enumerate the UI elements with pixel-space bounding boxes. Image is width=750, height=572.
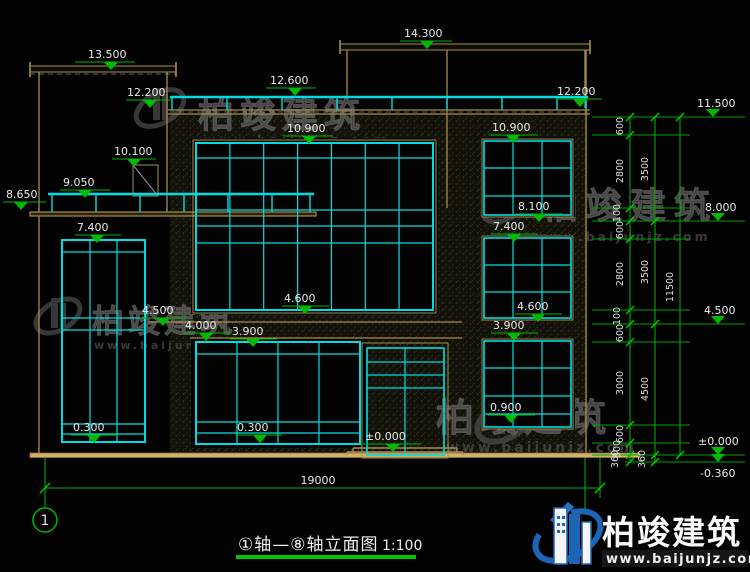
elevation-value: 4.600 — [284, 292, 316, 305]
dim-label: 3500 — [640, 157, 651, 181]
dim-label: 2800 — [615, 262, 626, 286]
elevation-value: 11.500 — [697, 97, 736, 110]
elevation-value: 10.900 — [492, 121, 531, 134]
logo-tower-3 — [582, 522, 591, 564]
elevation-value: 3.900 — [232, 325, 264, 338]
marker-12600: 12.600 — [266, 74, 316, 96]
elevation-value: 4.500 — [704, 304, 736, 317]
dim-label: 600 — [615, 221, 626, 239]
ground-line — [30, 453, 640, 458]
elevation-value: 8.100 — [518, 200, 550, 213]
elevation-value: 8.000 — [705, 201, 737, 214]
dim-label: 600 — [615, 324, 626, 342]
elevation-value: ±0.000 — [365, 430, 406, 443]
elevation-value: 10.900 — [287, 122, 326, 135]
chain-labels-col3: 11500 — [665, 272, 676, 302]
dimension-chains: 600 2800 100 600 2800 100 600 3000 600 3… — [592, 113, 745, 468]
dim-label: 3500 — [640, 260, 651, 284]
elevation-value: 12.200 — [557, 85, 596, 98]
brand-url: www.baijunjz.com — [606, 552, 750, 567]
marker-11500: 11.500 — [697, 97, 736, 117]
dim-label: 11500 — [665, 272, 676, 302]
marker-0000-right: ±0.000 — [698, 435, 739, 455]
dim-label: 100 — [612, 204, 623, 222]
elevation-value: 7.400 — [77, 221, 109, 234]
dim-label: 2800 — [615, 159, 626, 183]
elevation-value: 0.900 — [490, 401, 522, 414]
axis-number: 1 — [41, 513, 50, 529]
title-underline — [236, 555, 416, 559]
elevation-value: -0.360 — [700, 467, 735, 480]
brand-logo-icon — [527, 501, 609, 571]
marker-4500-right: 4.500 — [704, 304, 736, 324]
overall-dimension: 19000 1 — [33, 458, 605, 532]
chain-labels-col1: 600 2800 100 600 2800 100 600 3000 600 3… — [610, 117, 626, 468]
elevation-drawing: 柏竣建筑 www.baijunjz.com 柏竣建筑 www.baijunjz.… — [0, 0, 750, 572]
elevation-value: 12.200 — [127, 86, 166, 99]
elevation-value: 0.300 — [73, 421, 105, 434]
small-window-diagonal — [133, 165, 158, 196]
elevation-value: 13.500 — [88, 48, 127, 61]
brand-logo: 柏竣建筑 www.baijunjz.com — [527, 501, 750, 571]
marker-10100: 10.100 — [112, 145, 156, 167]
elevation-value: 7.400 — [493, 220, 525, 233]
drawing-title: ①轴—⑧轴立面图 1:100 — [236, 535, 422, 559]
brand-name-cn: 柏竣建筑 — [602, 513, 742, 552]
dim-label: 360 — [610, 450, 621, 468]
elevation-value: 12.600 — [270, 74, 309, 87]
logo-tower-2 — [569, 514, 580, 564]
elevation-value: 8.650 — [6, 188, 38, 201]
title-scale: 1:100 — [382, 538, 422, 554]
elevation-value: 3.900 — [493, 319, 525, 332]
dim-label: 100 — [612, 307, 623, 325]
elevation-value: ±0.000 — [698, 435, 739, 448]
marker-minus-0360: -0.360 — [700, 454, 735, 480]
elevation-value: 10.100 — [114, 145, 153, 158]
logo-tower-1 — [554, 508, 567, 564]
marker-12200-right: 12.200 — [556, 85, 602, 107]
dim-label: 600 — [615, 117, 626, 135]
balcony-slab — [30, 212, 316, 216]
elevation-value: 4.000 — [185, 319, 217, 332]
elevation-value: 9.050 — [63, 176, 95, 189]
left-tower-roof-slab — [30, 66, 176, 72]
overall-width-value: 19000 — [301, 474, 336, 487]
elevation-value: 14.300 — [404, 27, 443, 40]
cad-elevation-screenshot: 柏竣建筑 www.baijunjz.com 柏竣建筑 www.baijunjz.… — [0, 0, 750, 572]
dim-label: 360 — [637, 450, 648, 468]
title-text: ①轴—⑧轴立面图 — [238, 535, 378, 555]
dim-label: 3000 — [615, 371, 626, 395]
elevation-value: 4.600 — [517, 300, 549, 313]
elevation-value: 4.500 — [142, 304, 174, 317]
dim-label: 4500 — [640, 377, 651, 401]
elevation-value: 0.300 — [237, 421, 269, 434]
top-tower-roof-slab — [340, 44, 590, 50]
